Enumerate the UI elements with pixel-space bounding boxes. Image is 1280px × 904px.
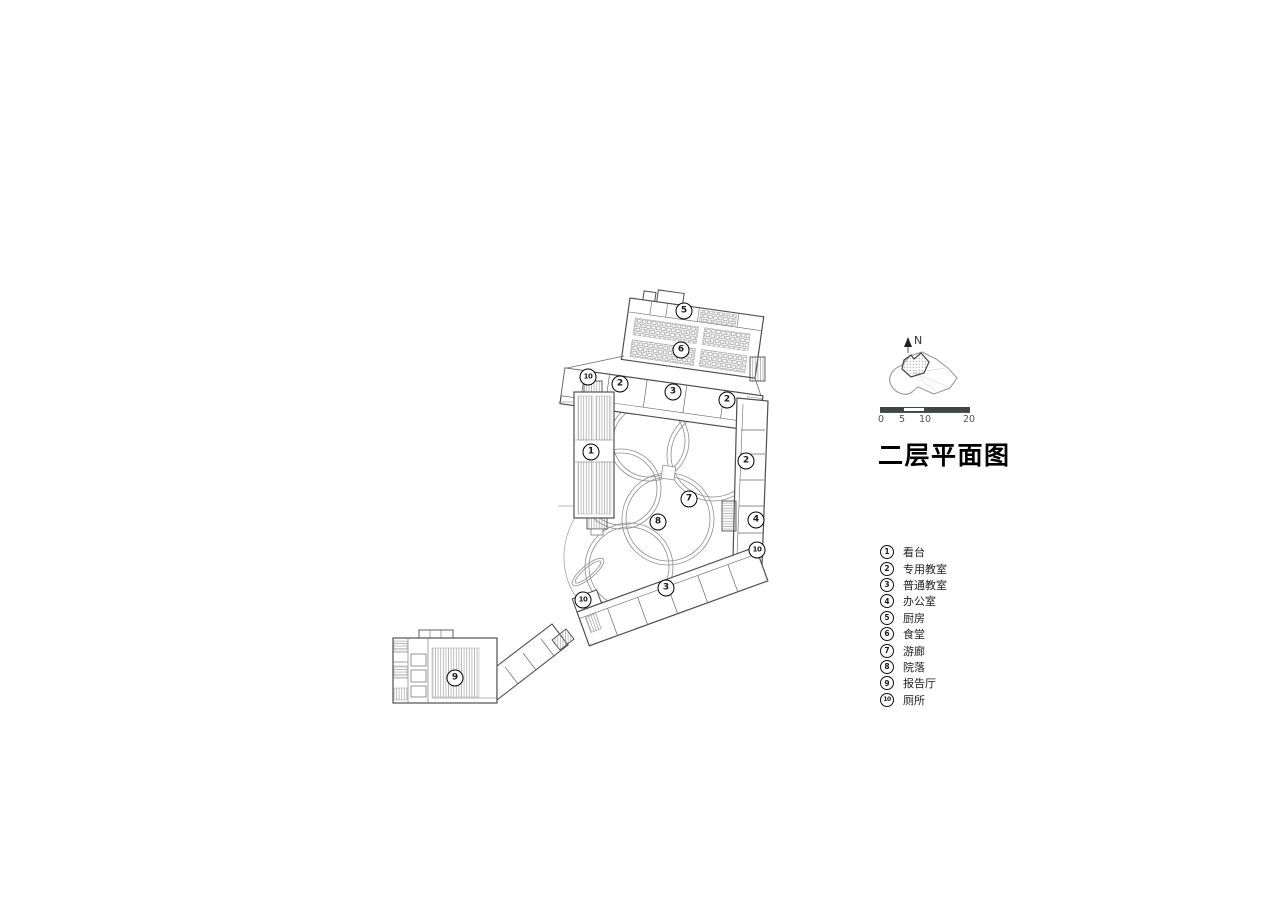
scale-label: 0 [878,414,884,425]
legend-item-number: 1 [880,545,894,559]
legend-item: 8院落 [880,659,947,675]
plan-room-marker: 2 [738,453,755,470]
stair-block [750,357,765,381]
legend-item-number: 7 [880,644,894,658]
legend-item: 5厨房 [880,610,947,626]
scale-label: 20 [963,414,975,425]
legend-item-number: 2 [880,562,894,576]
scale-label: 10 [919,414,931,425]
legend-item-number: 3 [880,578,894,592]
legend-item: 10厕所 [880,692,947,708]
legend-item: 1看台 [880,544,947,560]
legend-item-number: 4 [880,594,894,608]
legend-item-label: 厕所 [903,692,925,708]
legend-item-label: 食堂 [903,626,925,642]
dining-kitchen-building [621,286,765,378]
floor-plan-drawing [0,0,1280,904]
scale-label: 5 [899,414,905,425]
plan-room-marker: 10 [749,542,766,559]
legend-item-label: 游廊 [903,643,925,659]
scale-seg-5-10 [903,407,926,412]
scale-seg-10-20 [925,407,970,412]
legend-item: 3普通教室 [880,577,947,593]
legend-item-number: 5 [880,611,894,625]
plan-room-marker: 6 [673,342,690,359]
legend-item-label: 办公室 [903,593,936,609]
legend-item-number: 8 [880,660,894,674]
legend-item-number: 9 [880,676,894,690]
plan-room-marker: 5 [676,303,693,320]
lecture-hall-building [393,624,574,703]
legend-item: 9报告厅 [880,675,947,691]
legend-item: 7游廊 [880,642,947,658]
legend-item-label: 专用教室 [903,561,947,577]
scale-seg-0-5 [880,407,903,412]
legend-item-label: 报告厅 [903,675,936,691]
plan-room-marker: 4 [748,512,765,529]
plan-room-marker: 2 [612,376,629,393]
site-key-map [890,352,957,394]
sheet: N 0 5 10 20 二层平面图 1看台2专用教室3普通教室4办公室5厨房6食… [0,0,1280,904]
plan-room-marker: 1 [583,444,600,461]
legend-item: 2专用教室 [880,560,947,576]
legend-item: 6食堂 [880,626,947,642]
plan-room-marker: 3 [665,384,682,401]
plan-room-marker: 9 [447,670,464,687]
plan-room-marker: 7 [681,491,698,508]
legend-item: 4办公室 [880,593,947,609]
legend-item-label: 院落 [903,659,925,675]
legend-item-label: 看台 [903,544,925,560]
scale-bar: 0 5 10 20 [880,407,970,425]
legend-item-label: 普通教室 [903,577,947,593]
drawing-title: 二层平面图 [878,436,1011,472]
plan-room-marker: 3 [658,580,675,597]
plan-room-marker: 8 [650,514,667,531]
plan-room-marker: 10 [580,369,597,386]
north-arrow-icon [904,337,912,353]
legend-item-label: 厨房 [903,610,925,626]
legend-item-number: 6 [880,627,894,641]
plan-room-marker: 10 [575,592,592,609]
north-label: N [914,334,922,347]
plan-room-marker: 2 [719,392,736,409]
legend: 1看台2专用教室3普通教室4办公室5厨房6食堂7游廊8院落9报告厅10厕所 [880,544,947,708]
scale-labels: 0 5 10 20 [880,413,970,425]
legend-item-number: 10 [880,693,894,707]
